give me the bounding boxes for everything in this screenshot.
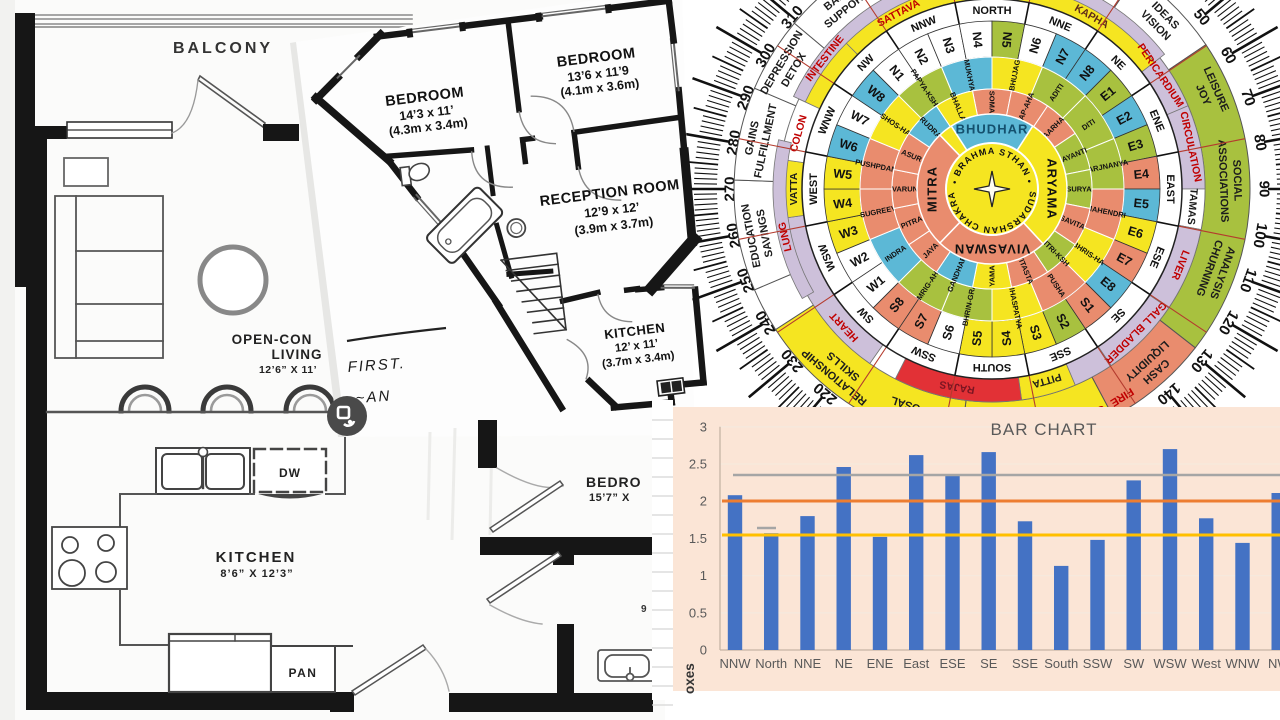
svg-text:WNW: WNW [1226, 656, 1261, 671]
svg-text:E4: E4 [1133, 167, 1150, 182]
svg-text:2.5: 2.5 [689, 457, 707, 472]
svg-text:BAR CHART: BAR CHART [991, 420, 1098, 439]
svg-text:8’6” X 12’3”: 8’6” X 12’3” [220, 568, 293, 580]
svg-text:1.5: 1.5 [689, 531, 707, 546]
svg-text:15’7” X: 15’7” X [589, 492, 630, 504]
svg-text:SSE: SSE [1012, 656, 1038, 671]
svg-text:SURYA: SURYA [1066, 185, 1092, 194]
svg-text:WSW: WSW [1153, 656, 1187, 671]
svg-text:LIVING: LIVING [271, 347, 322, 362]
svg-text:3: 3 [700, 419, 707, 434]
svg-text:S5: S5 [970, 330, 985, 347]
svg-text:80: 80 [1250, 133, 1270, 152]
svg-text:SE: SE [980, 656, 998, 671]
svg-text:ENE: ENE [867, 656, 894, 671]
svg-text:SOCIAL: SOCIAL [1230, 159, 1243, 201]
svg-text:W5: W5 [833, 166, 853, 182]
svg-text:NNW: NNW [719, 656, 751, 671]
svg-text:DW: DW [279, 466, 301, 480]
svg-text:NW: NW [1268, 656, 1280, 671]
svg-text:SSW: SSW [1083, 656, 1113, 671]
svg-text:ARYAMA: ARYAMA [1045, 158, 1060, 219]
svg-text:BHUDHAR: BHUDHAR [956, 122, 1029, 137]
svg-text:West: West [1192, 656, 1222, 671]
svg-text:OPEN-CON: OPEN-CON [232, 332, 313, 347]
svg-text:NE: NE [835, 656, 853, 671]
svg-text:SOMA: SOMA [988, 91, 997, 114]
svg-text:North: North [755, 656, 787, 671]
svg-text:BEDRO: BEDRO [586, 474, 642, 490]
svg-text:KITCHEN: KITCHEN [216, 549, 297, 566]
svg-text:South: South [1044, 656, 1078, 671]
svg-text:VARUN: VARUN [892, 185, 918, 194]
svg-text:S4: S4 [999, 330, 1014, 347]
svg-text:East: East [903, 656, 929, 671]
svg-text:ESE: ESE [939, 656, 965, 671]
svg-text:SOUTH: SOUTH [973, 361, 1012, 373]
svg-text:2: 2 [700, 494, 707, 509]
svg-text:oxes: oxes [682, 663, 697, 694]
svg-text:NNE: NNE [794, 656, 822, 671]
svg-text:W4: W4 [833, 196, 853, 212]
svg-text:BALCONY: BALCONY [173, 40, 273, 57]
svg-text:1: 1 [700, 568, 707, 583]
svg-text:EAST: EAST [1164, 174, 1176, 204]
svg-text:E5: E5 [1133, 196, 1150, 211]
svg-text:N4: N4 [970, 31, 985, 48]
svg-text:0.5: 0.5 [689, 605, 707, 620]
svg-text:MITRA: MITRA [925, 166, 940, 212]
svg-text:N5: N5 [999, 31, 1014, 48]
svg-text:0: 0 [700, 643, 707, 658]
svg-text:PAN: PAN [289, 666, 318, 680]
svg-text:NORTH: NORTH [972, 5, 1011, 17]
svg-text:12’6” X 11’: 12’6” X 11’ [259, 364, 317, 376]
svg-text:SW: SW [1123, 656, 1145, 671]
svg-text:9: 9 [641, 604, 647, 615]
svg-text:VIVASWAN: VIVASWAN [954, 242, 1030, 257]
svg-text:VATTA: VATTA [788, 172, 800, 205]
svg-text:WEST: WEST [808, 173, 820, 205]
svg-text:90: 90 [1256, 181, 1273, 198]
svg-text:YAMA: YAMA [988, 265, 997, 287]
